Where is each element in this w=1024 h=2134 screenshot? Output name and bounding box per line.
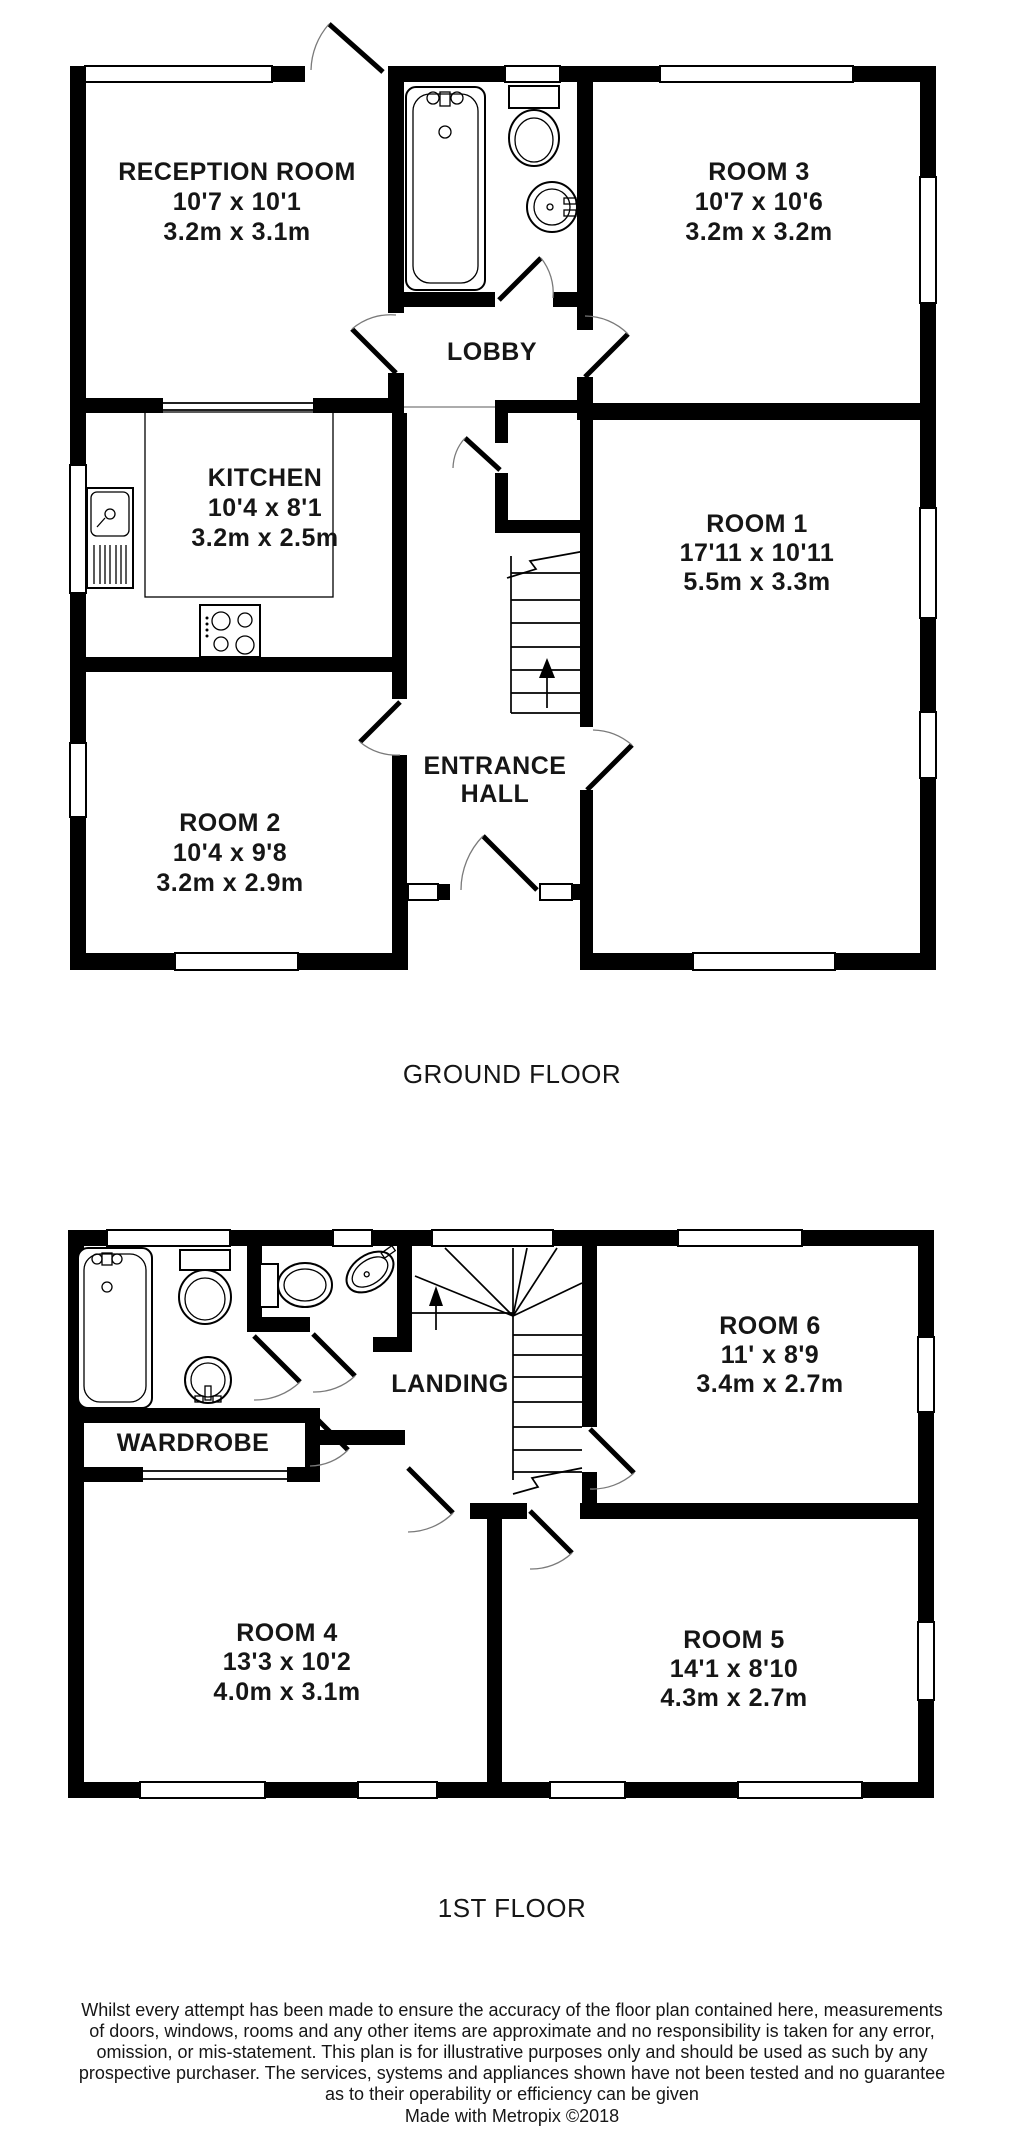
room2-imperial: 10'4 x 9'8 <box>173 839 287 867</box>
room6-metric: 3.4m x 2.7m <box>696 1370 843 1398</box>
room4-metric: 4.0m x 3.1m <box>213 1678 360 1706</box>
toilet-icon <box>179 1250 231 1324</box>
kitchen-imperial: 10'4 x 8'1 <box>208 494 322 522</box>
room3-metric: 3.2m x 3.2m <box>685 218 832 246</box>
reception-room-label: RECEPTION ROOM <box>118 158 356 186</box>
bathtub-icon <box>406 87 485 290</box>
entrance-hall-label-line2: HALL <box>461 780 530 808</box>
room3-imperial: 10'7 x 10'6 <box>695 188 824 216</box>
sink-icon <box>527 182 577 232</box>
disclaimer-line: of doors, windows, rooms and any other i… <box>89 2021 934 2041</box>
staircase-ground <box>507 551 585 713</box>
stairs-up-arrow-icon <box>539 658 555 678</box>
room1-imperial: 17'11 x 10'11 <box>680 539 835 567</box>
room1-label: ROOM 1 <box>706 510 808 538</box>
room3-label: ROOM 3 <box>708 158 810 186</box>
room6-label: ROOM 6 <box>719 1312 821 1340</box>
disclaimer-line: prospective purchaser. The services, sys… <box>79 2063 945 2083</box>
room1-metric: 5.5m x 3.3m <box>683 568 830 596</box>
disclaimer: Whilst every attempt has been made to en… <box>79 2000 945 2126</box>
reception-room-metric: 3.2m x 3.1m <box>163 218 310 246</box>
sink-icon <box>185 1357 231 1403</box>
credit-line: Made with Metropix ©2018 <box>405 2106 619 2126</box>
kitchen-metric: 3.2m x 2.5m <box>191 524 338 552</box>
room2-label: ROOM 2 <box>179 809 281 837</box>
disclaimer-line: omission, or mis-statement. This plan is… <box>96 2042 927 2062</box>
room2-metric: 3.2m x 2.9m <box>156 869 303 897</box>
room4-imperial: 13'3 x 10'2 <box>223 1648 352 1676</box>
toilet-icon <box>260 1263 332 1307</box>
room5-label: ROOM 5 <box>683 1626 785 1654</box>
corner-sink-icon <box>339 1239 407 1301</box>
floorplan-canvas: RECEPTION ROOM 10'7 x 10'1 3.2m x 3.1m R… <box>0 0 1024 2134</box>
toilet-icon <box>509 86 559 166</box>
disclaimer-line: as to their operability or efficiency ca… <box>325 2084 699 2104</box>
bathtub-icon <box>78 1248 152 1408</box>
wardrobe-label: WARDROBE <box>117 1429 270 1457</box>
ground-floor-title: GROUND FLOOR <box>403 1059 621 1089</box>
landing-label: LANDING <box>391 1370 508 1398</box>
entrance-hall-label-line1: ENTRANCE <box>424 752 567 780</box>
disclaimer-line: Whilst every attempt has been made to en… <box>81 2000 942 2020</box>
room5-metric: 4.3m x 2.7m <box>660 1684 807 1712</box>
lobby-label: LOBBY <box>447 338 537 366</box>
stairs-up-arrow-icon <box>429 1286 443 1306</box>
kitchen-label: KITCHEN <box>208 464 323 492</box>
hob-icon <box>200 605 260 657</box>
room6-imperial: 11' x 8'9 <box>721 1341 819 1369</box>
room4-label: ROOM 4 <box>236 1619 338 1647</box>
kitchen-sink-icon <box>87 488 133 588</box>
first-floor-title: 1ST FLOOR <box>438 1893 587 1923</box>
reception-room-imperial: 10'7 x 10'1 <box>173 188 302 216</box>
floorplan-page: RECEPTION ROOM 10'7 x 10'1 3.2m x 3.1m R… <box>0 0 1024 2134</box>
room5-imperial: 14'1 x 8'10 <box>670 1655 799 1683</box>
